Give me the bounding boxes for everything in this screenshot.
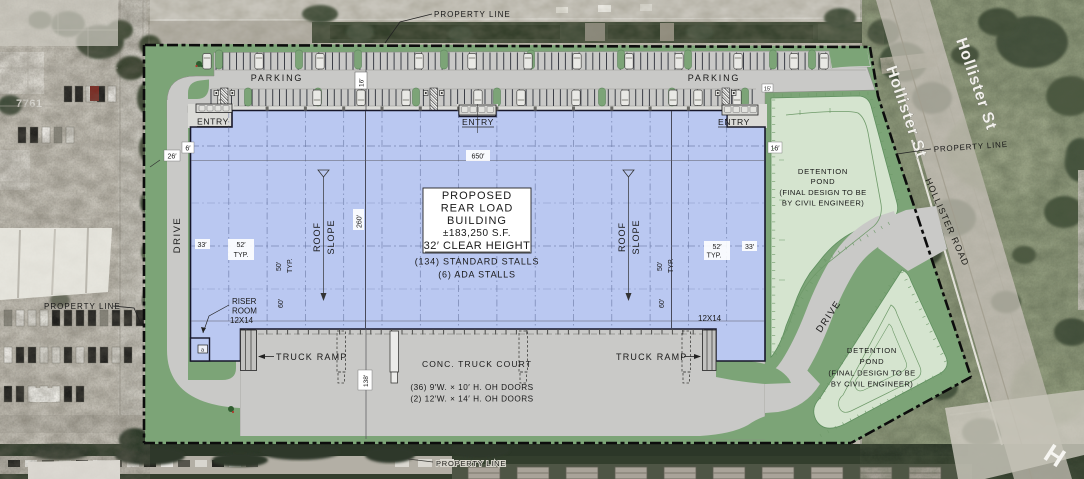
- svg-text:15′: 15′: [764, 87, 771, 93]
- svg-text:POND: POND: [811, 177, 836, 186]
- svg-text:SLOPE: SLOPE: [326, 219, 336, 254]
- svg-text:(FINAL DESIGN TO BE: (FINAL DESIGN TO BE: [828, 369, 915, 378]
- svg-text:(FINAL DESIGN TO BE: (FINAL DESIGN TO BE: [779, 188, 866, 197]
- svg-text:CONC. TRUCK COURT: CONC. TRUCK COURT: [422, 359, 532, 369]
- svg-text:DETENTION: DETENTION: [798, 167, 848, 176]
- svg-text:33′: 33′: [745, 244, 755, 251]
- svg-text:RISER: RISER: [232, 297, 257, 306]
- svg-text:32′ CLEAR HEIGHT: 32′ CLEAR HEIGHT: [424, 240, 531, 252]
- svg-text:REAR LOAD: REAR LOAD: [441, 203, 514, 215]
- svg-text:TYP.: TYP.: [707, 253, 722, 260]
- svg-text:60′: 60′: [278, 298, 285, 308]
- svg-text:BY CIVIL ENGINEER): BY CIVIL ENGINEER): [782, 199, 864, 208]
- svg-text:TYP.: TYP.: [668, 258, 675, 273]
- svg-text:ROOF: ROOF: [312, 222, 322, 252]
- svg-text:12X14: 12X14: [230, 316, 254, 325]
- svg-text:ENTRY: ENTRY: [718, 117, 750, 127]
- svg-text:PROPOSED: PROPOSED: [442, 190, 512, 202]
- svg-text:138′: 138′: [363, 374, 370, 387]
- svg-text:52′: 52′: [236, 242, 246, 249]
- svg-text:ENTRY: ENTRY: [462, 117, 494, 127]
- svg-text:TRUCK RAMP: TRUCK RAMP: [616, 352, 688, 362]
- svg-text:PROPERTY LINE: PROPERTY LINE: [44, 302, 121, 311]
- svg-text:PROPERTY LINE: PROPERTY LINE: [436, 459, 506, 468]
- svg-text:ENTRY: ENTRY: [197, 117, 229, 127]
- svg-text:60′: 60′: [659, 298, 666, 308]
- svg-text:TYP.: TYP.: [287, 258, 294, 273]
- svg-text:26′: 26′: [167, 154, 177, 161]
- svg-text:BY CIVIL ENGINEER): BY CIVIL ENGINEER): [831, 380, 913, 389]
- svg-text:PARKING: PARKING: [688, 73, 740, 83]
- svg-text:(2) 12′W. × 14′ H. OH DOORS: (2) 12′W. × 14′ H. OH DOORS: [410, 395, 533, 404]
- svg-text:(134) STANDARD STALLS: (134) STANDARD STALLS: [415, 257, 540, 267]
- svg-text:33′: 33′: [197, 242, 207, 249]
- svg-text:6′: 6′: [185, 146, 191, 153]
- svg-text:PARKING: PARKING: [251, 73, 303, 83]
- svg-text:±183,250 S.F.: ±183,250 S.F.: [443, 228, 511, 239]
- svg-text:TYP.: TYP.: [234, 252, 249, 259]
- svg-text:12X14: 12X14: [698, 314, 722, 323]
- svg-text:50′: 50′: [657, 261, 664, 271]
- svg-text:16′: 16′: [359, 78, 366, 87]
- svg-text:SLOPE: SLOPE: [631, 219, 641, 254]
- svg-text:PROPERTY LINE: PROPERTY LINE: [434, 10, 511, 19]
- svg-text:52′: 52′: [712, 244, 722, 251]
- svg-text:DETENTION: DETENTION: [847, 346, 897, 355]
- svg-text:TRUCK RAMP: TRUCK RAMP: [276, 352, 348, 362]
- svg-text:650′: 650′: [472, 154, 486, 161]
- svg-text:(6) ADA STALLS: (6) ADA STALLS: [438, 270, 516, 280]
- svg-text:ROOM: ROOM: [232, 307, 257, 316]
- svg-text:(36) 9′W. × 10′ H. OH DOORS: (36) 9′W. × 10′ H. OH DOORS: [410, 383, 533, 392]
- svg-text:16′: 16′: [770, 146, 780, 153]
- svg-text:ROOF: ROOF: [617, 222, 627, 252]
- svg-text:260′: 260′: [357, 214, 364, 228]
- svg-text:POND: POND: [860, 357, 885, 366]
- svg-text:DRIVE: DRIVE: [172, 217, 183, 254]
- svg-text:50′: 50′: [276, 261, 283, 271]
- svg-text:BUILDING: BUILDING: [447, 215, 507, 227]
